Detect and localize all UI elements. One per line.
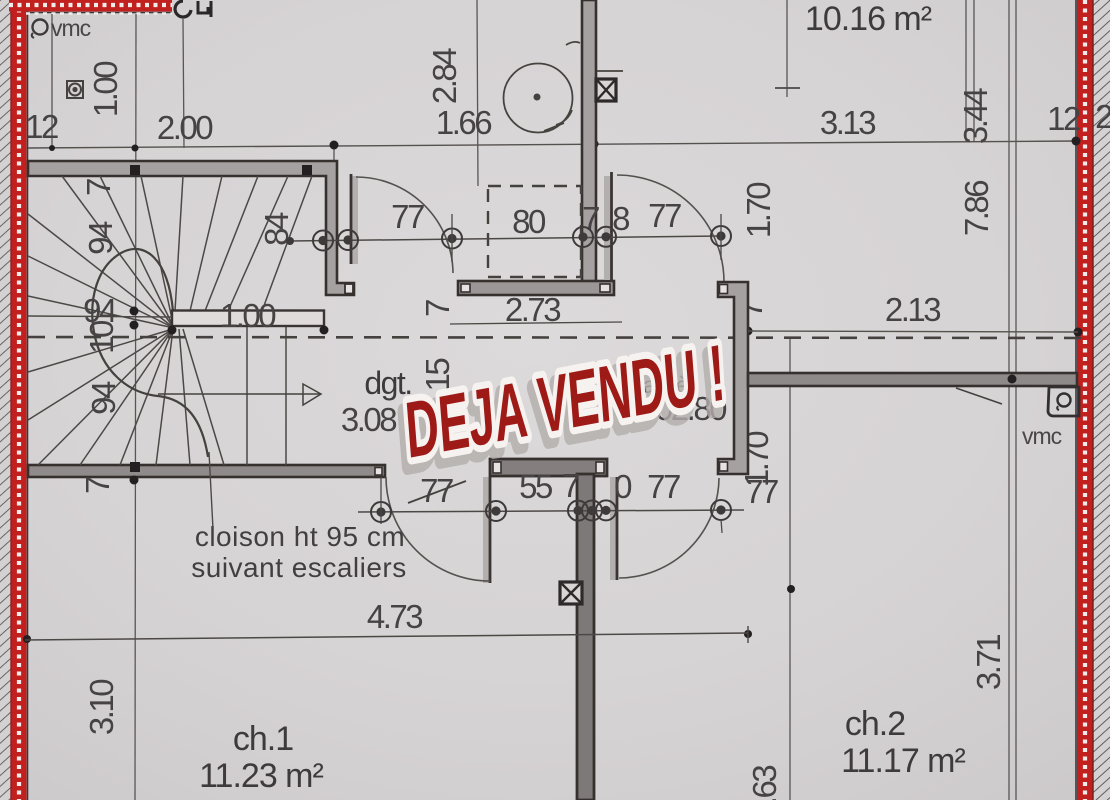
svg-text:vmc: vmc	[51, 15, 91, 41]
svg-text:77: 77	[745, 473, 778, 510]
svg-text:12: 12	[25, 108, 58, 145]
svg-text:94: 94	[82, 221, 119, 255]
svg-text:3.71: 3.71	[970, 635, 1007, 690]
svg-text:3.13: 3.13	[820, 104, 875, 141]
svg-text:7: 7	[80, 179, 117, 196]
svg-text:.63: .63	[746, 766, 783, 800]
svg-text:11.23 m²: 11.23 m²	[199, 757, 323, 795]
svg-text:3.44: 3.44	[957, 88, 994, 144]
svg-text:11.17 m²: 11.17 m²	[841, 742, 965, 780]
svg-text:ch.2: ch.2	[845, 705, 905, 743]
svg-text:0: 0	[614, 468, 632, 505]
svg-text:12: 12	[1047, 100, 1080, 137]
svg-text:1.70: 1.70	[740, 182, 777, 238]
svg-text:2.84: 2.84	[426, 48, 463, 104]
svg-text:7: 7	[562, 467, 579, 504]
svg-text:ch.1: ch.1	[233, 720, 293, 758]
svg-text:4.73: 4.73	[367, 598, 422, 635]
svg-text:7: 7	[79, 477, 116, 494]
svg-text:10.16 m²: 10.16 m²	[805, 0, 932, 38]
svg-text:1.00: 1.00	[87, 61, 124, 117]
svg-text:3.08: 3.08	[341, 401, 396, 438]
svg-text:cloison ht 95 cm: cloison ht 95 cm	[195, 521, 405, 552]
svg-text:1.66: 1.66	[436, 104, 491, 141]
svg-text:suivant escaliers: suivant escaliers	[191, 552, 406, 583]
svg-text:77: 77	[648, 197, 681, 234]
svg-text:77: 77	[391, 198, 424, 235]
svg-text:1.00: 1.00	[220, 297, 276, 334]
svg-text:7.86: 7.86	[958, 181, 995, 236]
svg-text:77: 77	[647, 468, 680, 505]
svg-text:55: 55	[519, 468, 552, 505]
svg-text:3.10: 3.10	[83, 679, 120, 735]
svg-text:2: 2	[1095, 98, 1110, 135]
svg-text:94: 94	[85, 381, 122, 415]
svg-text:80: 80	[512, 203, 546, 240]
svg-text:vmc: vmc	[1022, 423, 1062, 449]
svg-text:2.13: 2.13	[885, 291, 940, 328]
svg-text:2.00: 2.00	[157, 109, 213, 146]
svg-text:7: 7	[419, 300, 456, 317]
